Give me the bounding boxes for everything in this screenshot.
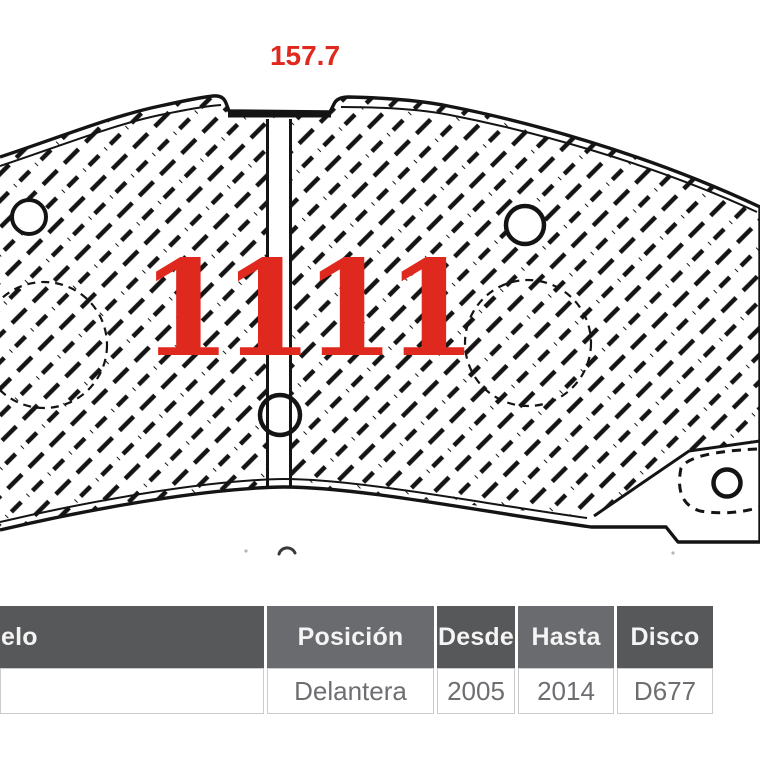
part-number: 1111 xyxy=(140,244,440,376)
fitment-table-data-row: Delantera 2005 2014 D677 xyxy=(0,668,713,714)
reference-dot-left xyxy=(244,549,247,552)
mounting-hole-left xyxy=(12,200,46,234)
cell-posicion: Delantera xyxy=(267,668,434,714)
header-cell-desde: Desde xyxy=(437,606,515,668)
mounting-hole-right xyxy=(506,206,544,244)
dimension-label: 157.7 xyxy=(240,40,370,72)
cell-modelo xyxy=(0,668,264,714)
header-cell-posicion: Posición xyxy=(267,606,434,668)
cell-disco: D677 xyxy=(617,668,713,714)
cell-desde: 2005 xyxy=(437,668,515,714)
product-image: 157.7 1111 elo Posición Desde Hasta Disc… xyxy=(0,0,760,760)
header-cell-hasta: Hasta xyxy=(518,606,614,668)
fitment-table: elo Posición Desde Hasta Disco Delantera… xyxy=(0,606,713,714)
reference-arc xyxy=(279,548,295,554)
ear-hole xyxy=(714,470,741,497)
reference-dot-right xyxy=(671,551,674,554)
fitment-table-header-row: elo Posición Desde Hasta Disco xyxy=(0,606,713,668)
header-cell-modelo: elo xyxy=(0,606,264,668)
header-cell-disco: Disco xyxy=(617,606,713,668)
cell-hasta: 2014 xyxy=(518,668,614,714)
